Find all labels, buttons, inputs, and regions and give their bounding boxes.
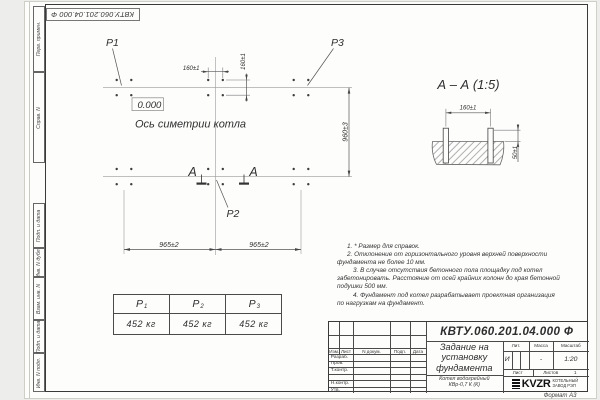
load-label-p2: Р2 (227, 208, 240, 220)
lit-label: Лит. (503, 343, 530, 348)
org-name: КОТЕЛЬНЫЙ ЗАВОД РЭП (552, 379, 578, 389)
kvzr-logo-text: KVZR (522, 378, 551, 390)
load-table-header-p3: Р3 (225, 294, 282, 314)
section-letter-right: А (248, 165, 257, 179)
dim-row-spacing: 960±3 (343, 122, 350, 142)
load-value-p1: 452 кг (113, 313, 170, 335)
load-label-p1: Р1 (106, 37, 119, 49)
doc-subtitle: Котел водогрейный КВр-0,7 К (К) (426, 376, 503, 389)
anchor-bolt-points (116, 79, 310, 186)
manufacturer-logo: KVZR КОТЕЛЬНЫЙ ЗАВОД РЭП (503, 376, 588, 392)
row-utv: Утв. (329, 388, 354, 393)
dim-span-left: 965±2 (159, 242, 179, 249)
anchor-bolt-right (488, 128, 493, 163)
row-tkontr: Т.контр. (329, 368, 354, 373)
section-letter-left: А (187, 165, 196, 179)
title-block: Изм. Лист N докум. Подп. Дата Разраб. Пр… (328, 321, 588, 392)
technical-notes: 1. * Размер для справок. 2. Отклонение о… (337, 243, 593, 308)
load-value-p3: 452 кг (225, 313, 282, 335)
mass-value: - (529, 356, 552, 363)
section-cut-marks: А А (187, 165, 257, 184)
anchor-bolt-left (443, 128, 448, 163)
row-prov: Пров. (329, 361, 354, 366)
scale-value: 1:20 (553, 356, 589, 363)
col-podp: Подп. (390, 349, 410, 354)
sheets-label: Листов (533, 370, 569, 375)
plan-view: Р1 Р3 Р2 0.000 Ось симетрии котла 160±1 … (103, 37, 352, 255)
col-list: Лист (339, 349, 353, 354)
scale-label: Масштаб (553, 343, 589, 348)
dim-bolt-spacing-x: 160±1 (183, 66, 200, 72)
col-data: Дата (410, 349, 426, 354)
note-line: подушки 500 мм. (337, 283, 593, 291)
load-table: Р1 Р2 Р3 452 кг 452 кг 452 кг (113, 295, 282, 335)
load-table-header-p1: Р1 (113, 294, 170, 314)
elevation-mark: 0.000 (138, 100, 162, 111)
format-label: Формат А3 (530, 393, 590, 399)
col-izm: Изм. (329, 349, 339, 354)
section-view: А – А (1:5) 160±1 50±1 (432, 77, 520, 165)
load-label-p3: Р3 (331, 37, 344, 49)
kvzr-logo-icon (512, 379, 520, 389)
note-line: 1. * Размер для справок. (337, 243, 593, 251)
section-title: А – А (1:5) (436, 77, 499, 92)
doc-number: КВТУ.060.201.04.000 Ф (426, 322, 588, 341)
row-razrab: Разраб. (329, 355, 354, 360)
section-dim-spacing: 160±1 (460, 106, 477, 112)
sheets-value: 1 (565, 370, 585, 375)
load-table-header-p2: Р2 (169, 294, 226, 314)
row-nkontr: Н.контр. (329, 381, 354, 386)
drawing-sheet: КВТУ.060.201.04.000 Ф Перв. примен. Спра… (0, 0, 600, 400)
note-line: 4. Фундамент под котел разрабатывает про… (337, 292, 593, 300)
note-line: по нагрузкам на фундамент. (337, 300, 593, 308)
lit-value: И (503, 356, 512, 363)
sheet-label: Лист (503, 370, 533, 375)
section-dim-height: 50±1 (513, 146, 519, 159)
load-value-p2: 452 кг (169, 313, 226, 335)
col-doc: N докум. (353, 349, 390, 354)
axis-of-symmetry-label: Ось симетрии котла (135, 119, 246, 131)
dim-span-right: 965±2 (249, 242, 269, 249)
mass-label: Масса (529, 343, 552, 348)
doc-title: Задание на установку фундамента (426, 341, 503, 374)
note-line: 2. Отклонение от горизонтального уровня … (337, 251, 593, 259)
dim-bolt-spacing-y: 160±1 (241, 53, 247, 70)
